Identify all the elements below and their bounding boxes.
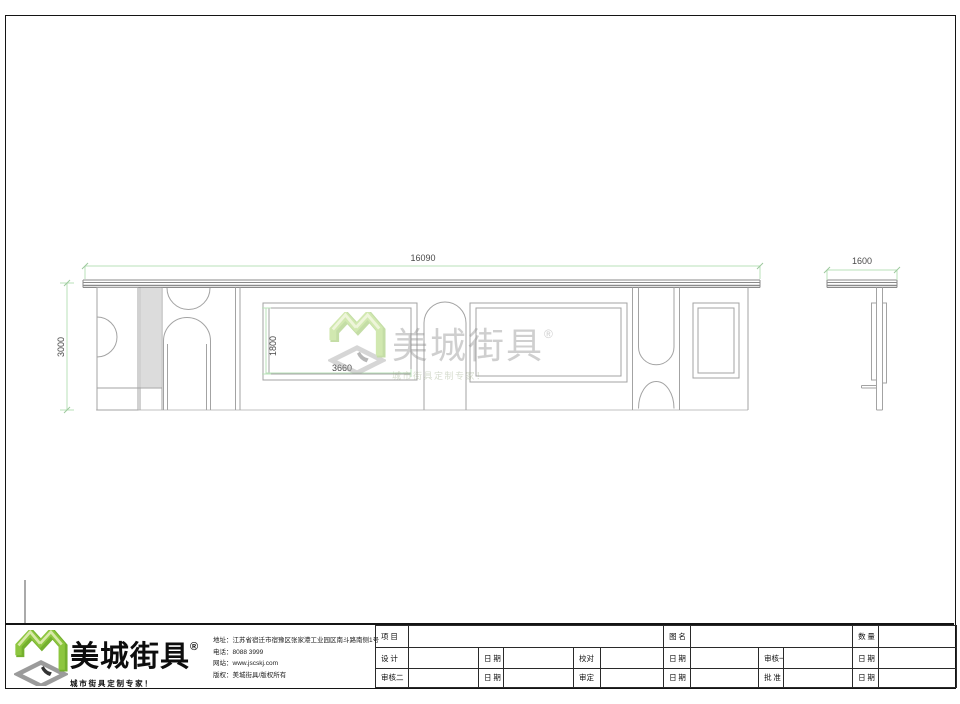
field-date-label: 日 期 [664,668,691,687]
side-elevation [827,280,897,410]
watermark-m-icon [328,312,386,374]
field-project-value [409,626,664,648]
field-date-label: 日 期 [664,648,691,668]
field-approve-check-value [601,668,664,687]
company-address: 地址：江苏省宿迁市宿豫区张家港工业园区南斗路南侧1号 [213,635,373,647]
field-reviewer2-value [409,668,479,687]
company-brand: 美城街具® [70,630,199,674]
field-date-label: 日 期 [853,668,879,687]
registered-mark: ® [190,641,199,653]
company-phone: 电话：8088 3999 [213,647,373,659]
field-date-value [504,668,574,687]
field-reviewer1-value [784,648,853,668]
watermark-brand: 美城街具® [392,312,555,368]
watermark-tagline: 城市街具定制专家！ [392,369,555,382]
dim-side-width: 1600 [852,256,872,266]
watermark-registered-mark: ® [544,327,555,341]
field-drawing-name-label: 图 名 [664,626,691,648]
side-panel-edges [872,303,887,383]
drawing-sheet: 16090 1600 3000 1800 3660 美城街具® 城市街具定制专家… [0,0,960,704]
company-logo: 美城街具® 城市街具定制专家！ [12,629,208,685]
field-quantity-value [879,626,957,648]
louvered-column [140,288,162,411]
field-approve-label: 批 准 [759,668,784,687]
field-date-label: 日 期 [479,668,504,687]
poster-panel [693,303,739,378]
field-quantity-label: 数 量 [853,626,879,648]
field-proofread-value [601,648,664,668]
logo-m-icon [14,630,68,686]
company-website: 网站：www.jscskj.com [213,658,373,670]
dim-overall-height: 3000 [56,337,66,357]
field-date-label: 日 期 [479,648,504,668]
field-date-value [504,648,574,668]
field-approve-value [784,668,853,687]
field-date-value [879,668,957,687]
company-info: 地址：江苏省宿迁市宿豫区张家港工业园区南斗路南侧1号 电话：8088 3999 … [213,635,373,681]
field-project-label: 项 目 [376,626,409,648]
field-design-value [409,648,479,668]
field-drawing-name-value [691,626,853,648]
company-copyright: 版权：美城街具/版权所有 [213,670,373,682]
field-date-label: 日 期 [853,648,879,668]
field-design-label: 设 计 [376,648,409,668]
watermark-logo: 美城街具® 城市街具定制专家！ [328,312,558,382]
field-approve-check-label: 审定 [574,668,601,687]
title-block-table: 项 目 图 名 数 量 设 计 日 期 校对 日 期 审核一 日 期 审核二 日… [375,625,957,688]
roof-slab [83,280,760,288]
field-date-value [691,648,759,668]
field-reviewer1-label: 审核一 [759,648,784,668]
side-seat-bracket [862,386,877,389]
dim-total-width: 16090 [410,253,435,263]
side-post [877,288,883,411]
side-roof-slab [827,280,897,288]
field-proofread-label: 校对 [574,648,601,668]
arched-column [633,288,680,411]
slim-posts [236,288,241,411]
company-tagline: 城市街具定制专家！ [70,678,199,689]
field-reviewer2-label: 审核二 [376,668,409,687]
dim-panel-height: 1800 [268,336,278,356]
arch-bay [164,288,211,410]
field-date-value [879,648,957,668]
field-date-value [691,668,759,687]
